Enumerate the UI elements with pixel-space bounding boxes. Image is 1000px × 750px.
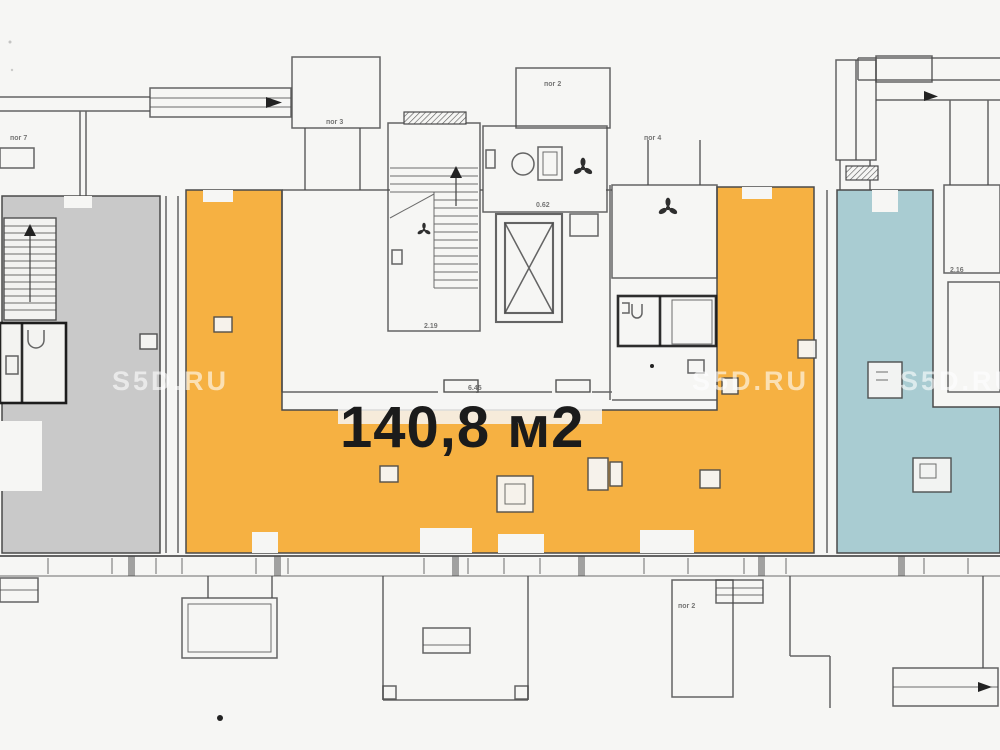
direction-arrow-icon [978,682,992,692]
wall-piers [128,556,905,576]
duct-box [700,470,720,488]
window-bay [420,528,472,553]
balcony [423,628,470,653]
balcony [182,598,277,658]
room-label: пог 2 [678,603,695,610]
top-right-box [876,56,932,82]
scan-speck [11,69,13,71]
dimension-label: 2.19 [424,323,438,330]
balcony-inner [188,604,271,652]
room-label: пог 2 [544,81,561,88]
floor-plan-scan: пог 7 пог 3 пог 2 пог 4 пог 2 2.19 6.45 … [0,0,1000,750]
shaft-box [214,317,232,332]
plan-dot [217,715,223,721]
scan-white-patch [64,196,92,208]
window-bay [640,530,694,553]
stair-treads-lower [390,192,478,288]
window-connector-wall [648,140,700,185]
dimension-label: 6.45 [468,385,482,392]
room-label: пог 3 [326,119,343,126]
duct-box [610,462,622,486]
window-box [716,580,763,603]
cistern-inner [543,152,557,175]
scan-white-patch [742,187,772,199]
room-label: пог 7 [10,135,27,142]
vent-icon [417,223,431,235]
scan-white-patch [872,190,898,212]
scan-white-patch [0,421,42,491]
mid-right-room [612,185,717,278]
door-leaf [556,380,590,392]
bath-niche [486,150,495,168]
stair-window-hatch [404,112,466,124]
watermark: S5D.RU [112,366,229,396]
shaft-box [798,340,816,358]
duct-box [588,458,608,490]
top-left-corridor-walls [0,97,150,196]
right-room [944,185,1000,273]
toilet-icon [512,153,534,175]
top-room [292,57,380,128]
shaft-box [140,334,157,349]
stair-treads-upper [390,168,478,192]
duct-box [380,466,398,482]
watermark: S5D.RU [900,366,1000,396]
mid-right-bathroom [618,296,716,346]
window-connector-wall [305,128,360,190]
balcony-connector [208,576,272,598]
dimension-label: 2.16 [950,267,964,274]
area-label: 140,8 м2 [340,395,584,460]
window-bay [252,532,278,553]
watermark: S5D.RU [692,366,809,396]
stair-niche [392,250,402,264]
shaft-box [913,458,951,492]
vent-icon [573,158,594,176]
pier-block [383,686,396,699]
window-ticks [48,558,968,574]
bathroom-inner-room [672,300,712,344]
window-bay [498,534,544,553]
dimension-label: 0.62 [536,202,550,209]
left-bathroom [0,323,66,403]
toilet-icon [622,303,642,318]
plan-dot [650,364,654,368]
floor-plan-svg: пог 7 пог 3 пог 2 пог 4 пог 2 2.19 6.45 … [0,0,1000,750]
top-center-room [516,68,610,128]
pier-block [515,686,528,699]
direction-arrow-icon [266,97,282,108]
scan-speck [9,41,12,44]
elevator-side-box [570,214,598,236]
duct-box [497,476,533,512]
elevator-cross [505,223,553,313]
window-box-lines [716,588,763,595]
room-label: пог 4 [644,135,661,142]
window-hatch [846,166,878,180]
lower-room [672,580,733,697]
scan-white-patch [203,190,233,202]
vent-icon [658,198,679,216]
